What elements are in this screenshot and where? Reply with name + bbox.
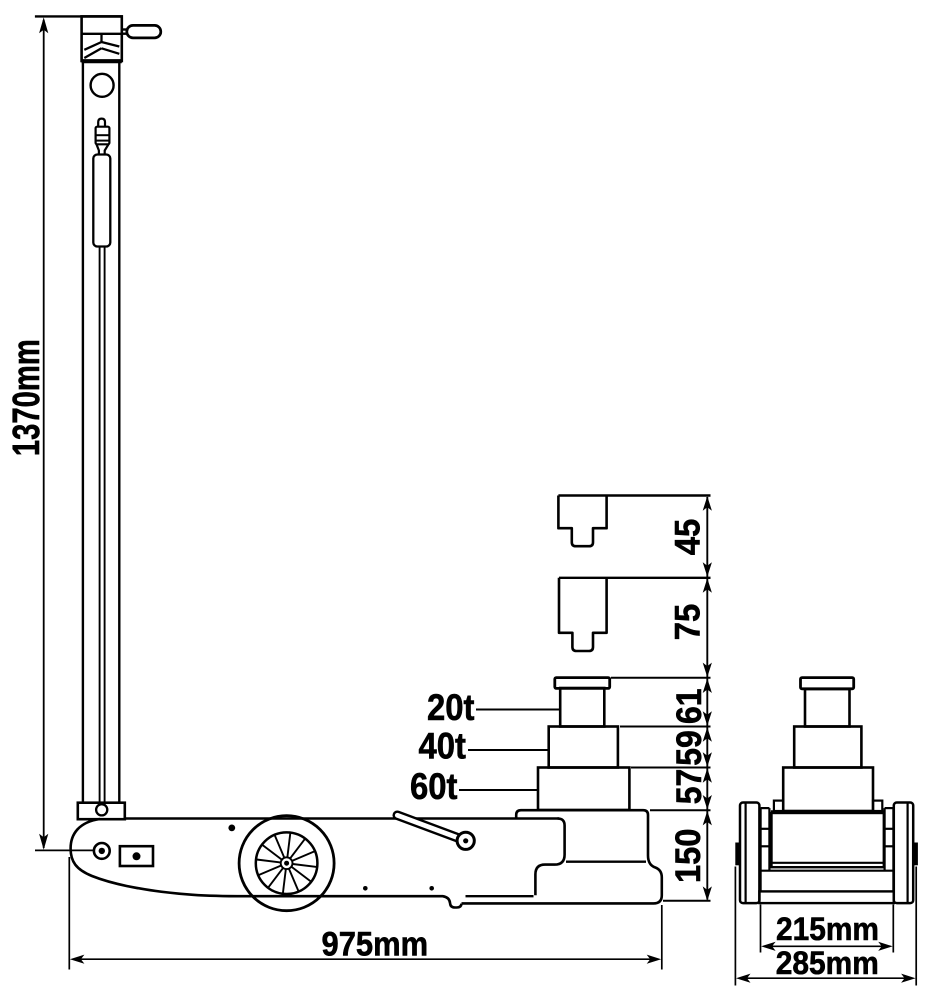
svg-text:60t: 60t	[410, 766, 458, 807]
svg-text:59: 59	[670, 730, 709, 766]
svg-text:40t: 40t	[419, 726, 467, 767]
svg-text:150: 150	[669, 829, 708, 884]
svg-text:1370mm: 1370mm	[6, 339, 48, 456]
svg-text:20t: 20t	[427, 687, 475, 728]
svg-text:61: 61	[670, 689, 709, 725]
svg-text:975mm: 975mm	[322, 925, 429, 963]
svg-text:215mm: 215mm	[776, 911, 879, 947]
svg-text:45: 45	[669, 519, 708, 556]
svg-text:57: 57	[670, 769, 709, 805]
svg-text:75: 75	[669, 604, 708, 641]
svg-text:285mm: 285mm	[776, 945, 879, 981]
